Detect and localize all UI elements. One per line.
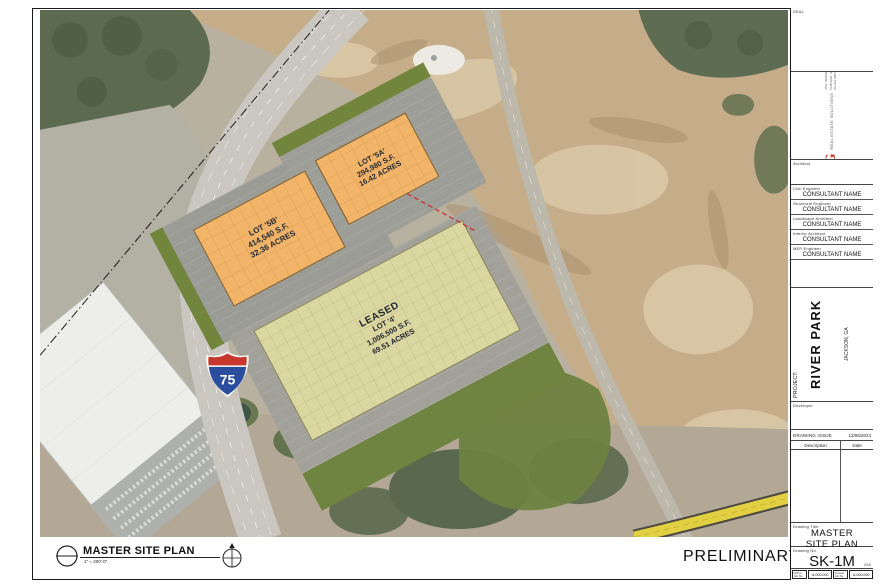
consultant-row: Structural Engineer CONSULTANT NAME [791, 200, 873, 215]
crg-address: 35 E. WACKER DRIVE CHICAGO, ILLINOIS 606… [824, 72, 838, 90]
north-arrow-icon [222, 543, 242, 570]
detail-bubble-icon [56, 545, 78, 567]
date-header: Date [840, 441, 873, 449]
site-plan-map: 75 LOT '5B' 414,540 S.F. 32.36 ACRES LOT… [40, 10, 788, 537]
drawing-issue-row: DRAWING ISSUE 12/06/2024 [791, 430, 873, 441]
description-header: Description [791, 441, 840, 449]
revision-header-row: Description Date [791, 441, 873, 450]
crg-logo-name: CRG [823, 153, 840, 160]
consultant-row: MEP Engineer CONSULTANT NAME [791, 245, 873, 260]
drawing-number-box: Drawing No. SK-1M XXX [791, 547, 873, 569]
job1-label: CRG's Job No. [792, 570, 807, 579]
job1-number: A-000-000 [808, 570, 832, 579]
crg-logo: CRG REAL ESTATE SOLUTIONS 35 E. WACKER D… [792, 72, 870, 159]
seal-label: SEAL [793, 9, 804, 14]
firm-box: CRG REAL ESTATE SOLUTIONS 35 E. WACKER D… [791, 72, 873, 160]
job-number-strip: CRG's Job No. A-000-000 Consult Job No. … [791, 569, 873, 580]
view-scale: 1" = 200'-0" [84, 559, 107, 564]
view-title: MASTER SITE PLAN [83, 545, 195, 557]
project-name: RIVER PARK [808, 292, 823, 396]
architect-box: Architect [791, 160, 873, 185]
quarry-equipment [431, 55, 437, 61]
title-block: SEAL CRG REAL ESTATE SOLUTIONS 35 E. WAC… [790, 8, 873, 580]
project-location: JACKSON, GA [844, 296, 850, 392]
revision-table [791, 450, 873, 523]
spacer-box [791, 260, 873, 288]
project-label: PROJECT: [793, 338, 799, 398]
i75-shield-number: 75 [220, 371, 236, 387]
view-title-rule [80, 557, 220, 558]
drawing-sheet: 75 LOT '5B' 414,540 S.F. 32.36 ACRES LOT… [0, 0, 882, 588]
consultant-row: Landscape Architect CONSULTANT NAME [791, 215, 873, 230]
drawing-issue-date: 12/06/2024 [848, 433, 871, 438]
consultant-row: Interior Architect CONSULTANT NAME [791, 230, 873, 245]
project-box: PROJECT: RIVER PARK JACKSON, GA [791, 288, 873, 402]
drawing-number: SK-1M [791, 553, 873, 570]
sheet-note: XXX [864, 563, 871, 567]
job2-label: Consult Job No. [833, 570, 848, 579]
drawing-title-box: Drawing Title MASTER SITE PLAN [791, 523, 873, 547]
crg-tagline: REAL ESTATE SOLUTIONS [829, 93, 834, 150]
developer-box: Developer [791, 402, 873, 430]
seal-box: SEAL [791, 8, 873, 72]
consultant-row: Civil Engineer CONSULTANT NAME [791, 185, 873, 200]
drawing-issue-label: DRAWING ISSUE [793, 433, 832, 438]
job2-number: A-000-000 [849, 570, 873, 579]
preliminary-stamp: PRELIMINARY [683, 548, 800, 566]
